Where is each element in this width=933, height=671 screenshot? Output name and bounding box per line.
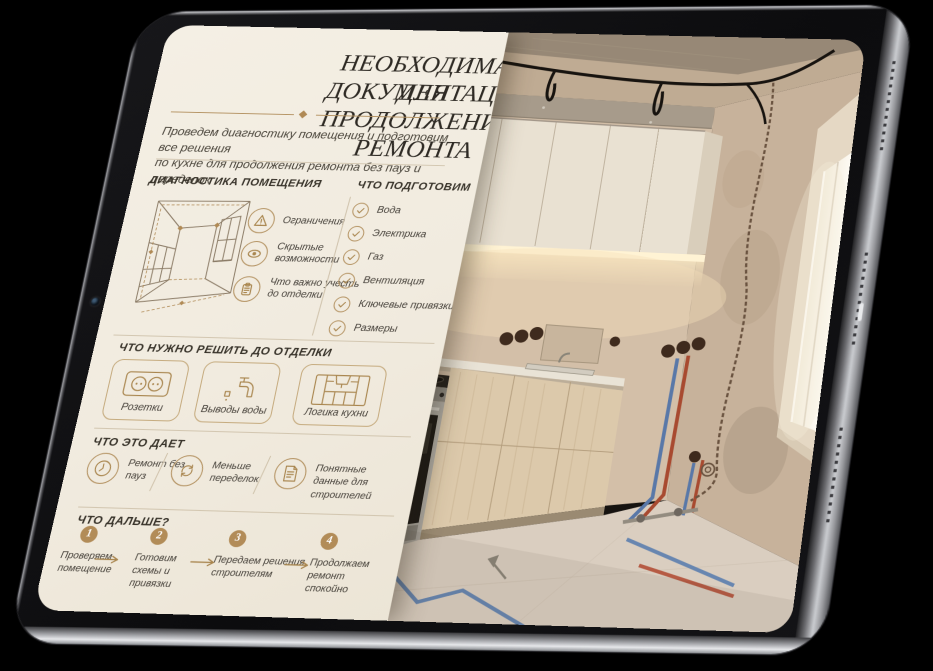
check-circle-icon [346, 226, 365, 242]
water-tap-icon [209, 370, 268, 404]
step-label: Продолжаем ремонт спокойно [304, 556, 380, 597]
poster-panel-shadow: НЕОБХОДИМАЯ ДОКУМЕНТАЦИЯ ДЛЯ ПРОДОЛЖЕНИЯ… [33, 25, 866, 633]
arrow-right-icon [189, 557, 219, 568]
decide-card-label: Выводы воды [195, 404, 273, 417]
check-circle-icon [327, 320, 347, 336]
room-wireframe-illustration [127, 193, 253, 332]
tablet-screen: НЕОБХОДИМАЯ ДОКУМЕНТАЦИЯ ДЛЯ ПРОДОЛЖЕНИЯ… [33, 25, 866, 633]
eye-icon [238, 241, 270, 267]
step-number-badge: 2 [149, 528, 170, 545]
clipboard-icon [231, 276, 263, 302]
diamond-ornament-icon [299, 110, 308, 118]
scene: НЕОБХОДИМАЯ ДОКУМЕНТАЦИЯ ДЛЯ ПРОДОЛЖЕНИЯ… [0, 0, 933, 671]
check-circle-icon [351, 203, 370, 219]
prepare-item-label: Вода [376, 205, 402, 216]
tablet-edge-bottom [8, 626, 824, 655]
prepare-item-label: Электрика [371, 228, 427, 240]
arrow-right-icon [93, 554, 123, 565]
front-camera-icon [90, 298, 100, 306]
decide-card-label: Розетки [103, 401, 181, 414]
step-number-badge: 3 [227, 530, 248, 547]
decide-card-kitchen: Логика кухни [291, 364, 389, 427]
prepare-item-label: Размеры [353, 323, 399, 335]
power-socket-icon [118, 367, 177, 401]
tablet-edge-top [139, 5, 915, 16]
decide-card-water: Выводы воды [192, 361, 282, 424]
document-icon [271, 458, 309, 490]
prepare-item-label: Вентиляция [362, 275, 425, 287]
diagnostics-item-label: Ограничения [281, 215, 377, 229]
page-title: НЕОБХОДИМАЯ ДОКУМЕНТАЦИЯ ДЛЯ ПРОДОЛЖЕНИЯ… [164, 46, 501, 81]
benefits-heading: ЧТО ЭТО ДАЕТ [92, 436, 186, 451]
arrow-right-icon [283, 559, 313, 571]
kitchen-elevation-icon [307, 372, 374, 408]
prepare-item-label: Ключевые привязки [357, 299, 454, 312]
prepare-item-label: Газ [367, 252, 385, 263]
warning-triangle-icon [245, 208, 277, 234]
poster-panel: НЕОБХОДИМАЯ ДОКУМЕНТАЦИЯ ДЛЯ ПРОДОЛЖЕНИЯ… [33, 25, 511, 621]
decide-card-label: Логика кухни [293, 406, 379, 420]
clock-icon [84, 452, 123, 484]
decide-heading: ЧТО НУЖНО РЕШИТЬ ДО ОТДЕЛКИ [118, 342, 333, 360]
decide-card-sockets: Розетки [100, 359, 191, 422]
step-number-badge: 4 [319, 533, 339, 550]
section-divider [94, 428, 411, 438]
benefit-label: Понятные данные для строителей [309, 463, 395, 504]
step-number-badge: 1 [79, 526, 100, 543]
